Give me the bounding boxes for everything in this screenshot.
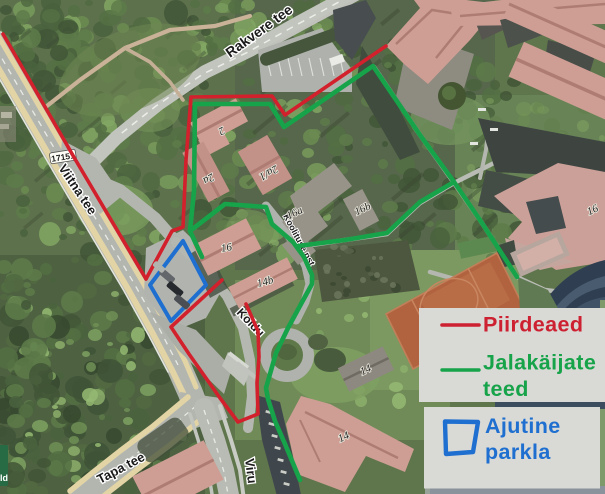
svg-text:parkla: parkla xyxy=(485,440,551,464)
svg-text:Piirdeaed: Piirdeaed xyxy=(483,313,583,337)
svg-text:Viru: Viru xyxy=(242,458,260,485)
svg-text:ld: ld xyxy=(0,473,8,483)
svg-text:Ajutine: Ajutine xyxy=(485,414,561,438)
svg-text:Jalakäijate: Jalakäijate xyxy=(483,351,596,375)
svg-text:teed: teed xyxy=(483,377,529,401)
